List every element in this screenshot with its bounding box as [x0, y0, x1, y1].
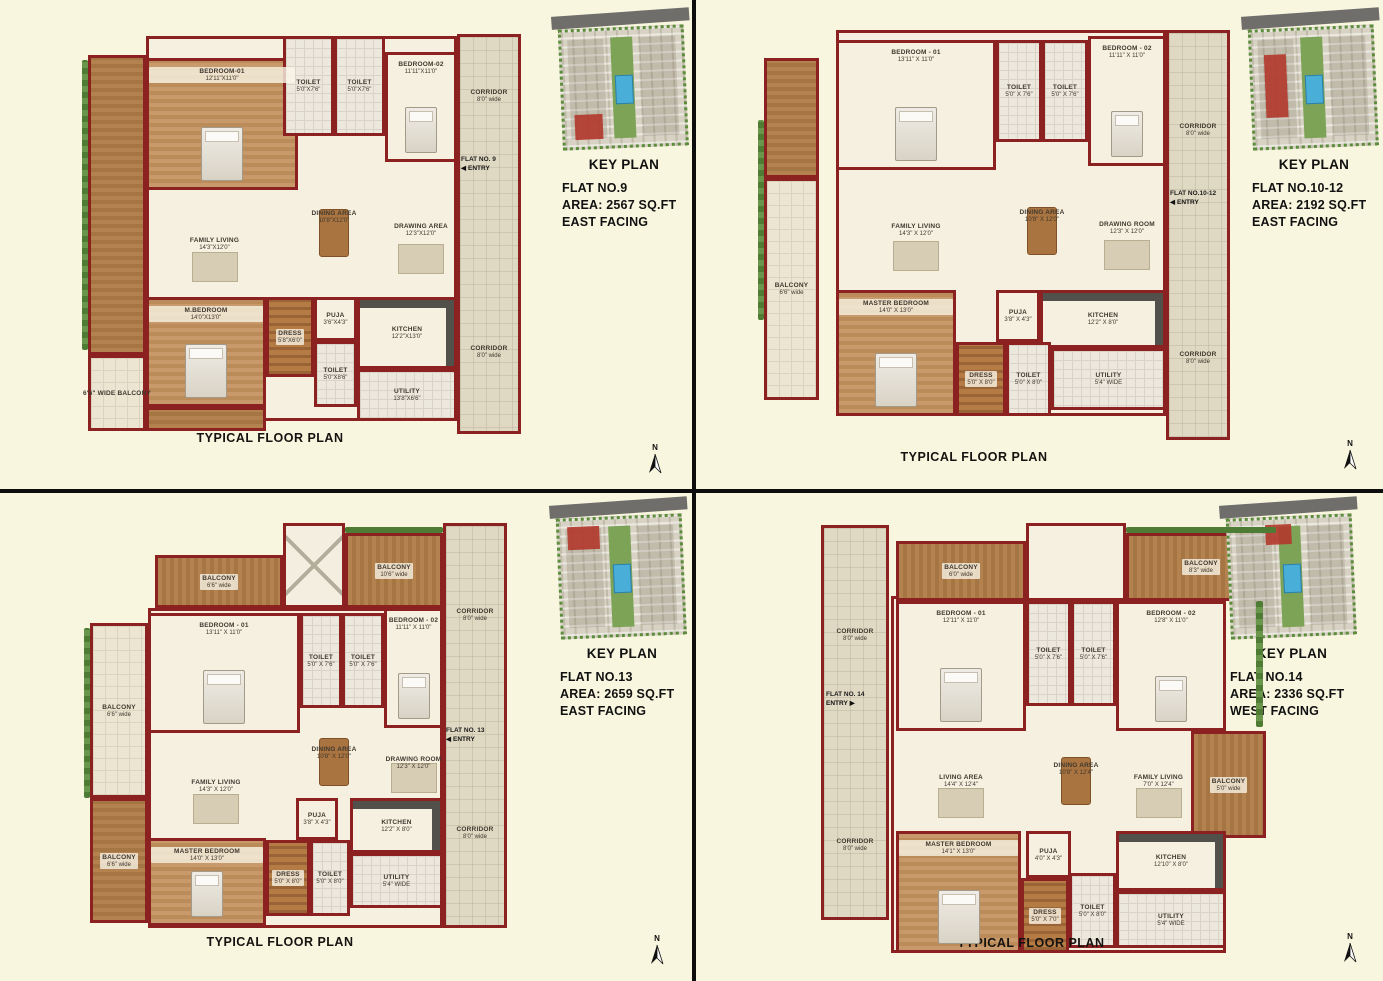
floor-plan-sheet: 6'6" WIDE BALCONY BEDROOM-0112'11"X11'0"…	[0, 0, 1383, 981]
room-puja: PUJA4'0" X 4'3"	[1026, 831, 1071, 878]
bed-furniture	[405, 107, 437, 153]
room-name: BALCONY	[102, 704, 136, 711]
rug-furniture	[193, 794, 239, 824]
flat-facing: EAST FACING	[558, 215, 690, 229]
room-name: TOILET	[347, 79, 371, 86]
room-dim: 13'8"X6'6"	[393, 396, 420, 402]
room-name: CORRIDOR	[457, 826, 494, 833]
entry-flat-label: FLAT NO. 13	[446, 727, 485, 734]
room-label: FAMILY LIVING14'3" X 12'0"	[891, 223, 940, 237]
room-label: BEDROOM - 0211'11" X 11'0"	[387, 617, 440, 631]
room-label: DRAWING AREA12'3"X12'0"	[394, 223, 448, 237]
room-family-living: FAMILY LIVING7'0" X 12'4"	[1126, 731, 1191, 831]
room-dim: 5'0" X 8'0"	[316, 879, 343, 885]
corridor-label: CORRIDOR8'0" wide	[446, 826, 504, 840]
room-dim: 5'0"X7'6"	[348, 87, 372, 93]
entry-word: ENTRY	[826, 700, 848, 707]
room-label: BALCONY6'6" wide	[100, 853, 138, 869]
flat-area: AREA: 2567 SQ.FT	[558, 198, 690, 212]
room-label: FAMILY LIVING7'0" X 12'4"	[1134, 774, 1183, 788]
room-family-living: FAMILY LIVING14'3" X 12'0"	[836, 170, 996, 290]
room-dim: 14'0"X13'0"	[191, 315, 222, 321]
room-name: BALCONY	[1212, 778, 1246, 785]
room-name: KITCHEN	[392, 326, 422, 333]
room-puja: PUJA3'8" X 4'3"	[296, 798, 338, 840]
room-dim: 5'0" X 7'6"	[1005, 92, 1032, 98]
key-plan-title: KEY PLAN	[558, 157, 690, 172]
room-name: BALCONY	[102, 854, 136, 861]
entry-word: ENTRY	[453, 736, 475, 743]
flat-number: FLAT NO.13	[556, 670, 688, 684]
balcony-deck	[88, 55, 146, 355]
entry-arrow-icon: ◀	[1170, 198, 1175, 206]
room-balcony: BALCONY6'6" wide	[764, 178, 819, 400]
room-dim: 13'11" X 11'0"	[898, 57, 934, 63]
room-name: BEDROOM - 02	[1102, 45, 1151, 52]
room-balcony-top-1: BALCONY6'6" wide	[155, 555, 283, 608]
room-drawing-area: DRAWING AREA12'3"X12'0"	[385, 162, 457, 297]
room-dim: 8'0" wide	[1186, 359, 1210, 365]
north-label: N	[652, 443, 658, 452]
entry-arrow-icon: ◀	[446, 735, 451, 743]
room-name: TOILET	[1007, 84, 1031, 91]
corridor: CORRIDOR8'0" wide CORRIDOR8'0" wide	[1166, 30, 1230, 440]
entry-flat-label: FLAT NO. 9	[461, 156, 496, 163]
room-utility: UTILITY13'8"X6'6"	[357, 369, 457, 421]
room-label: BEDROOM - 0211'11" X 11'0"	[1091, 45, 1163, 59]
room-name: FAMILY LIVING	[190, 237, 239, 244]
room-dim: 5'0" wide	[1217, 786, 1241, 792]
room-dim: 8'0" wide	[477, 97, 501, 103]
room-dim: 14'0" X 13'0"	[879, 308, 913, 314]
flat-number: FLAT NO.14	[1226, 670, 1358, 684]
rug-furniture	[938, 788, 984, 818]
room-label: TOILET5'0" X 7'6"	[1080, 647, 1107, 661]
courtyard	[608, 525, 634, 627]
room-name: CORRIDOR	[471, 345, 508, 352]
key-plan-map	[553, 498, 689, 642]
entry-label: ◀ENTRY	[461, 164, 490, 172]
room-toilet-2: TOILET5'0" X 7'6"	[342, 613, 384, 708]
panel-flat-9: 6'6" WIDE BALCONY BEDROOM-0112'11"X11'0"…	[0, 0, 692, 489]
balcony-deck-bottom	[146, 407, 266, 431]
room-dim: 5'4" WIDE	[1157, 921, 1184, 927]
room-label: KITCHEN12'10" X 8'0"	[1154, 854, 1188, 868]
room-label: UTILITY13'8"X6'6"	[393, 388, 420, 402]
planter-strip	[758, 120, 764, 320]
room-label: TOILET5'0" X 8'0"	[316, 871, 343, 885]
unit-block	[637, 525, 677, 625]
room-name: TOILET	[323, 367, 347, 374]
room-name: KITCHEN	[1088, 312, 1118, 319]
room-label: M.BEDROOM14'0"X13'0"	[149, 306, 263, 322]
room-label: BEDROOM - 0212'8" X 11'0"	[1119, 610, 1223, 624]
room-dim: 5'0"X7'6"	[297, 87, 321, 93]
room-toilet-3: TOILET5'0" X 8'0"	[310, 840, 350, 916]
room-dim: 5'0" X 7'6"	[1051, 92, 1078, 98]
room-label: BEDROOM - 0113'11" X 11'0"	[839, 49, 993, 63]
entry-flat-label: FLAT NO. 14	[826, 691, 865, 698]
room-dim: 3'6"X4'3"	[324, 320, 348, 326]
room-balcony-left-2: BALCONY6'6" wide	[90, 798, 148, 923]
dining-table-furniture	[319, 738, 349, 786]
room-bedroom-02: BEDROOM - 0211'11" X 11'0"	[1088, 36, 1166, 166]
kitchen-counter	[353, 801, 440, 809]
room-dining-area: DINING AREA10'8" X 12'4"	[1026, 706, 1126, 831]
room-dim: 14'1" X 13'0"	[942, 849, 976, 855]
room-dim: 8'0" wide	[477, 353, 501, 359]
bed-furniture	[398, 673, 430, 719]
room-name: TOILET	[1080, 904, 1104, 911]
flat-area: AREA: 2192 SQ.FT	[1248, 198, 1380, 212]
room-label: BEDROOM - 0112'11" X 11'0"	[899, 610, 1023, 624]
room-kitchen: KITCHEN12'2" X 8'0"	[350, 798, 443, 853]
room-name: BALCONY	[202, 575, 236, 582]
room-dim: 5'0" X 7'6"	[1035, 655, 1062, 661]
room-dim: 14'3"X12'0"	[199, 245, 230, 251]
room-label: BALCONY5'0" wide	[1210, 777, 1248, 793]
room-dim: 6'0" wide	[949, 572, 973, 578]
room-name: UTILITY	[1096, 372, 1122, 379]
room-dim: 5'8"X6'0"	[278, 338, 302, 344]
room-dim: 5'0"X8'6"	[324, 375, 348, 381]
room-dim: 6'6" wide	[107, 862, 131, 868]
room-dim: 5'0" X 8'0"	[1079, 912, 1106, 918]
room-name: BALCONY	[377, 564, 411, 571]
plan-caption: TYPICAL FLOOR PLAN	[824, 450, 1124, 464]
entry-label: ◀ENTRY	[1170, 198, 1199, 206]
planter-strip	[82, 60, 88, 350]
room-dim: 12'11" X 11'0"	[943, 618, 979, 624]
room-name: UTILITY	[1158, 913, 1184, 920]
room-label: BALCONY6'6" wide	[200, 574, 238, 590]
room-dim: 11'11" X 11'0"	[396, 625, 432, 631]
corridor-label: CORRIDOR8'0" wide	[460, 89, 518, 103]
site-layout	[556, 513, 687, 639]
room-living-area: LIVING AREA14'4" X 12'4"	[896, 731, 1026, 831]
corridor-label: CORRIDOR8'0" wide	[1169, 123, 1227, 137]
rug-furniture	[893, 241, 939, 271]
room-master-bedroom: MASTER BEDROOM14'0" X 13'0"	[148, 838, 266, 926]
key-plan-map	[555, 9, 691, 153]
rug-furniture	[398, 244, 444, 274]
flat-facing: WEST FACING	[1226, 704, 1358, 718]
room-dim: 6'6" wide	[780, 290, 804, 296]
site-layout	[558, 24, 689, 150]
pool	[615, 75, 633, 104]
room-bedroom-01: BEDROOM-0112'11"X11'0"	[146, 58, 298, 190]
room-dim: 4'0" X 4'3"	[1035, 856, 1062, 862]
room-master-bedroom: M.BEDROOM14'0"X13'0"	[146, 297, 266, 407]
room-bedroom-02: BEDROOM - 0212'8" X 11'0"	[1116, 601, 1226, 731]
dining-table-furniture	[1061, 757, 1091, 805]
room-bedroom-01: BEDROOM - 0113'11" X 11'0"	[148, 613, 300, 733]
room-toilet-1: TOILET5'0" X 7'6"	[300, 613, 342, 708]
bed-furniture	[203, 670, 245, 724]
room-dining-area: DINING AREA10'8"X12'0"	[283, 136, 385, 297]
entry-flat-label: FLAT NO.10-12	[1170, 190, 1216, 197]
corridor-label: CORRIDOR8'0" wide	[446, 608, 504, 622]
room-label: PUJA4'0" X 4'3"	[1035, 848, 1062, 862]
room-name: FAMILY LIVING	[1134, 774, 1183, 781]
room-name: BEDROOM - 01	[936, 610, 985, 617]
room-dim: 8'0" wide	[463, 616, 487, 622]
room-label: BALCONY6'0" wide	[942, 563, 980, 579]
planter-strip	[84, 628, 90, 798]
room-name: DRAWING ROOM	[1099, 221, 1155, 228]
room-name: TOILET	[1081, 647, 1105, 654]
room-master-bedroom: MASTER BEDROOM14'1" X 13'0"	[896, 831, 1021, 953]
north-label: N	[1347, 932, 1353, 941]
room-dim: 5'0" X 8'0"	[967, 380, 994, 386]
room-dim: 5'0" X 7'6"	[349, 662, 376, 668]
key-plan: KEY PLAN FLAT NO.13 AREA: 2659 SQ.FT EAS…	[556, 501, 688, 718]
room-name: MASTER BEDROOM	[174, 848, 240, 855]
entry-word: ENTRY	[468, 165, 490, 172]
room-name: TOILET	[1036, 647, 1060, 654]
room-name: PUJA	[1039, 848, 1057, 855]
room-dim: 6'6" wide	[207, 583, 231, 589]
room-dress: DRESS5'0" X 8'0"	[956, 342, 1006, 416]
kitchen-counter	[1155, 293, 1163, 345]
room-balcony-right: BALCONY5'0" wide	[1191, 731, 1266, 838]
north-label: N	[654, 934, 660, 943]
room-name: BALCONY	[944, 564, 978, 571]
corridor-label: CORRIDOR8'0" wide	[1169, 351, 1227, 365]
room-name: TOILET	[1053, 84, 1077, 91]
room-name: BEDROOM - 01	[891, 49, 940, 56]
room-name: CORRIDOR	[1180, 351, 1217, 358]
corridor: CORRIDOR8'0" wide CORRIDOR8'0" wide	[457, 34, 521, 434]
room-toilet-2: TOILET5'0" X 7'6"	[1071, 601, 1116, 706]
room-label: MASTER BEDROOM14'0" X 13'0"	[151, 847, 263, 863]
room-label: BEDROOM-0211'11"X11'0"	[388, 61, 454, 75]
flat-facing: EAST FACING	[556, 704, 688, 718]
room-dim: 12'2"X13'0"	[392, 334, 423, 340]
room-name: DRESS	[278, 330, 301, 337]
room-balcony-top-1: BALCONY6'0" wide	[896, 541, 1026, 601]
room-balcony: 6'6" WIDE BALCONY	[88, 355, 146, 431]
room-label: BEDROOM - 0113'11" X 11'0"	[151, 622, 297, 636]
room-name: PUJA	[326, 312, 344, 319]
room-label: BALCONY6'6" wide	[102, 704, 136, 718]
room-dim: 5'0" X 7'6"	[307, 662, 334, 668]
room-label: FAMILY LIVING14'3"X12'0"	[190, 237, 239, 251]
corridor: CORRIDOR8'0" wide CORRIDOR8'0" wide	[443, 523, 507, 928]
room-name: DRAWING ROOM	[386, 756, 442, 763]
room-utility: UTILITY5'4" WIDE	[1051, 348, 1166, 410]
entry-label: ◀ENTRY	[446, 735, 475, 743]
room-balcony-left: BALCONY6'6" wide	[90, 623, 148, 798]
room-label: TOILET5'0" X 8'0"	[1015, 372, 1042, 386]
room-label: MASTER BEDROOM14'1" X 13'0"	[899, 840, 1018, 856]
room-label: TOILET5'0" X 8'0"	[1079, 904, 1106, 918]
room-label: PUJA3'6"X4'3"	[324, 312, 348, 326]
room-label: UTILITY5'4" WIDE	[383, 874, 410, 888]
bed-furniture	[185, 344, 227, 398]
room-balcony-top-2: BALCONY10'6" wide	[345, 533, 443, 608]
bed-furniture	[895, 107, 937, 161]
room-dim: 5'0" X 8'0"	[274, 879, 301, 885]
balcony-deck	[764, 58, 819, 178]
flat-number: FLAT NO.9	[558, 181, 690, 195]
room-label: DRESS5'0" X 8'0"	[965, 371, 996, 387]
corridor-label: CORRIDOR8'0" wide	[824, 628, 886, 642]
pool	[1305, 75, 1323, 104]
room-name: CORRIDOR	[471, 89, 508, 96]
room-toilet-1: TOILET5'0" X 7'6"	[1026, 601, 1071, 706]
room-name: FAMILY LIVING	[191, 779, 240, 786]
entry-marker: FLAT NO.10-12 ◀ENTRY	[1170, 190, 1216, 206]
north-arrow: N	[1341, 438, 1359, 472]
room-dim: 3'8" X 4'3"	[1004, 317, 1031, 323]
north-arrow: N	[648, 933, 666, 967]
entry-marker: FLAT NO. 13 ◀ENTRY	[446, 727, 485, 743]
room-name: DRESS	[1033, 909, 1056, 916]
bed-furniture	[938, 890, 980, 944]
bed-furniture	[875, 353, 917, 407]
room-dim: 5'0" X 7'0"	[1031, 917, 1058, 923]
highlighted-flat	[574, 114, 604, 141]
room-toilet-1: TOILET5'0"X7'6"	[283, 36, 334, 136]
planter-strip	[1256, 601, 1263, 727]
key-plan: KEY PLAN FLAT NO.9 AREA: 2567 SQ.FT EAST…	[558, 12, 690, 229]
room-label: TOILET5'0" X 7'6"	[1005, 84, 1032, 98]
room-toilet-3: TOILET5'0" X 8'0"	[1006, 342, 1051, 416]
room-drawing-room: DRAWING ROOM12'3" X 12'0"	[1088, 166, 1166, 290]
room-master-bedroom: MASTER BEDROOM14'0" X 13'0"	[836, 290, 956, 416]
room-dim: 5'4" WIDE	[383, 882, 410, 888]
planter-strip	[1126, 527, 1276, 533]
room-name: CORRIDOR	[837, 628, 874, 635]
pool	[613, 564, 631, 593]
room-name: MASTER BEDROOM	[863, 300, 929, 307]
room-dim: 5'0" X 7'6"	[1080, 655, 1107, 661]
room-dim: 12'8" X 11'0"	[1154, 618, 1187, 624]
courtyard	[1300, 36, 1326, 138]
room-dim: 12'3"X12'0"	[406, 231, 437, 237]
room-label: TOILET5'0"X7'6"	[296, 79, 320, 93]
room-dim: 11'11"X11'0"	[405, 69, 438, 75]
room-dim: 6'6" wide	[107, 712, 131, 718]
room-dim: 12'3" X 12'0"	[1110, 229, 1144, 235]
room-dress: DRESS5'8"X6'0"	[266, 297, 314, 377]
room-label: TOILET5'0"X7'6"	[347, 79, 371, 93]
room-name: DRESS	[276, 871, 299, 878]
room-label: BALCONY10'6" wide	[375, 563, 413, 579]
room-name: FAMILY LIVING	[891, 223, 940, 230]
bed-furniture	[1155, 676, 1187, 722]
room-utility: UTILITY5'4" WIDE	[350, 853, 443, 908]
key-plan-title: KEY PLAN	[1226, 646, 1358, 661]
dining-table-furniture	[1027, 207, 1057, 255]
room-name: CORRIDOR	[457, 608, 494, 615]
room-dim: 8'3" wide	[1189, 568, 1213, 574]
room-label: BALCONY6'6" wide	[775, 282, 809, 296]
entry-word: ENTRY	[1177, 199, 1199, 206]
room-drawing-room: DRAWING ROOM12'3" X 12'0"	[384, 728, 443, 798]
room-bedroom-01: BEDROOM - 0112'11" X 11'0"	[896, 601, 1026, 731]
site-layout	[1248, 24, 1379, 150]
room-bedroom-01: BEDROOM - 0113'11" X 11'0"	[836, 40, 996, 170]
room-dim: 8'0" wide	[843, 636, 867, 642]
room-name: TOILET	[1016, 372, 1040, 379]
entry-arrow-icon: ▶	[850, 699, 855, 707]
room-name: UTILITY	[384, 874, 410, 881]
room-name: TOILET	[351, 654, 375, 661]
corridor: CORRIDOR8'0" wide CORRIDOR8'0" wide	[821, 525, 889, 920]
room-dim: 14'3" X 12'0"	[199, 787, 233, 793]
room-name: TOILET	[296, 79, 320, 86]
room-label: PUJA3'8" X 4'3"	[303, 812, 330, 826]
key-plan-title: KEY PLAN	[1248, 157, 1380, 172]
pool	[1283, 564, 1301, 593]
room-name: TOILET	[318, 871, 342, 878]
room-dim: 3'8" X 4'3"	[303, 820, 330, 826]
courtyard	[610, 36, 636, 138]
room-name: DRAWING AREA	[394, 223, 448, 230]
room-puja: PUJA3'6"X4'3"	[314, 297, 357, 341]
entry-label: ENTRY▶	[826, 699, 855, 707]
kitchen-counter	[1043, 293, 1163, 301]
room-label: DRAWING ROOM12'3" X 12'0"	[1099, 221, 1155, 235]
room-label: UTILITY5'4" WIDE	[1157, 913, 1184, 927]
room-kitchen: KITCHEN12'2" X 8'0"	[1040, 290, 1166, 348]
panel-flat-14: CORRIDOR8'0" wide CORRIDOR8'0" wide FLAT…	[696, 493, 1383, 981]
lift-shaft	[283, 523, 345, 608]
room-label: BALCONY8'3" wide	[1182, 559, 1220, 575]
room-label: DRESS5'8"X6'0"	[276, 329, 304, 345]
plan-caption: TYPICAL FLOOR PLAN	[130, 935, 430, 949]
room-label: TOILET5'0"X8'6"	[323, 367, 347, 381]
highlighted-flat	[1264, 54, 1288, 118]
rug-furniture	[391, 763, 437, 793]
room-name: CORRIDOR	[837, 838, 874, 845]
room-dim: 8'0" wide	[463, 834, 487, 840]
room-family-living: FAMILY LIVING14'3" X 12'0"	[148, 733, 284, 838]
room-name: BEDROOM-01	[199, 68, 244, 75]
room-dim: 13'11" X 11'0"	[206, 630, 242, 636]
room-bedroom-02: BEDROOM-0211'11"X11'0"	[385, 52, 457, 162]
room-toilet-2: TOILET5'0"X7'6"	[334, 36, 385, 136]
unit-block	[1329, 36, 1369, 136]
room-label: TOILET5'0" X 7'6"	[1035, 647, 1062, 661]
room-kitchen: KITCHEN12'2"X13'0"	[357, 297, 457, 369]
north-arrow: N	[646, 442, 664, 476]
kitchen-counter	[446, 300, 454, 366]
kitchen-counter	[360, 300, 454, 308]
rug-furniture	[1104, 240, 1150, 270]
unit-block	[639, 36, 679, 136]
flat-number: FLAT NO.10-12	[1248, 181, 1380, 195]
room-toilet-1: TOILET5'0" X 7'6"	[996, 40, 1042, 142]
key-plan: KEY PLAN FLAT NO.14 AREA: 2336 SQ.FT WES…	[1226, 501, 1358, 718]
panel-flat-13: BALCONY6'6" wide BALCONY10'6" wide BALCO…	[0, 493, 692, 981]
key-plan-map	[1223, 498, 1359, 642]
room-name: CORRIDOR	[1180, 123, 1217, 130]
room-label: DRESS5'0" X 7'0"	[1029, 908, 1060, 924]
room-name: MASTER BEDROOM	[926, 841, 992, 848]
room-dining-area: DINING AREA10'8" X 12'0"	[284, 708, 384, 798]
room-name: DRESS	[969, 372, 992, 379]
key-plan-title: KEY PLAN	[556, 646, 688, 661]
room-name: PUJA	[308, 812, 326, 819]
key-plan: KEY PLAN FLAT NO.10-12 AREA: 2192 SQ.FT …	[1248, 12, 1380, 229]
room-label: 6'6" WIDE BALCONY	[83, 390, 151, 397]
rug-furniture	[1136, 788, 1182, 818]
room-bedroom-02: BEDROOM - 0211'11" X 11'0"	[384, 608, 443, 728]
room-label: TOILET5'0" X 7'6"	[307, 654, 334, 668]
